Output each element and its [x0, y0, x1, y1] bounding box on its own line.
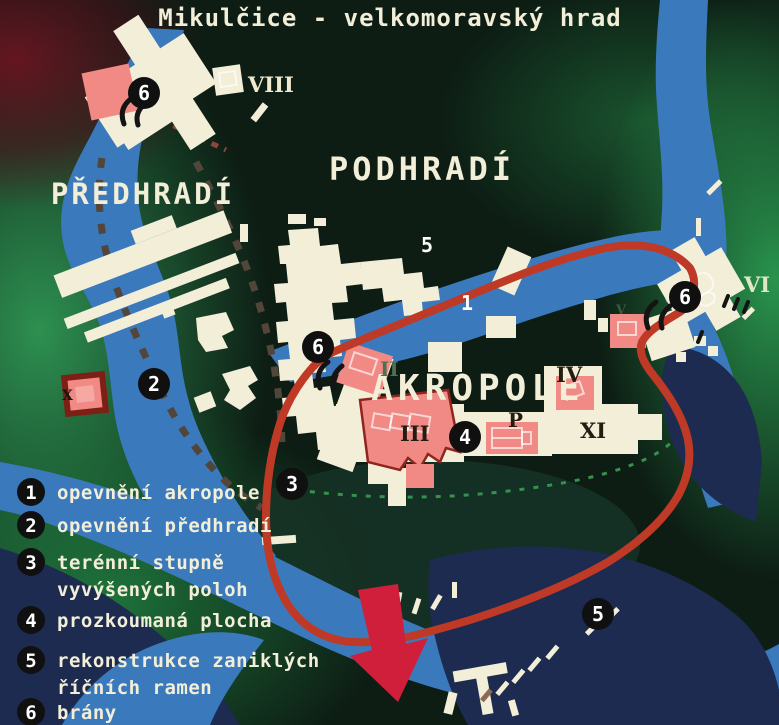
map-marker-6: 6 — [669, 281, 701, 313]
legend-item-text: brány — [57, 702, 117, 724]
site-label-xi: XI — [580, 418, 606, 443]
legend-item-number: 1 — [25, 482, 36, 504]
church-viii-shape — [212, 64, 244, 96]
legend-item-text: terénní stupně — [57, 552, 224, 574]
map-marker-6: 6 — [302, 331, 334, 363]
legend-item-number: 5 — [25, 650, 36, 672]
legend-item-text: opevnění předhradí — [57, 515, 272, 537]
site-map-svg: Mikulčice - velkomoravský hrad PŘEDHRADÍ… — [0, 0, 779, 725]
river-number-5: 5 — [421, 233, 433, 257]
map-marker-number: 2 — [148, 372, 160, 396]
legend-item-text: rekonstrukce zaniklých — [57, 650, 320, 672]
map-marker-4: 4 — [449, 421, 481, 453]
map-marker-number: 5 — [592, 602, 604, 626]
map-title: Mikulčice - velkomoravský hrad — [158, 4, 621, 32]
legend-item-text: vyvýšených poloh — [57, 579, 248, 601]
region-label-akropole: AKROPOLE — [371, 368, 584, 409]
site-label-iii: III — [400, 421, 429, 446]
site-label-ii: II — [380, 357, 399, 381]
map-marker-2: 2 — [138, 368, 170, 400]
map-marker-number: 6 — [679, 285, 691, 309]
site-label-iv: IV — [556, 362, 583, 387]
site-label-x: X — [62, 388, 73, 404]
map-marker-3: 3 — [276, 468, 308, 500]
site-label-v: V — [615, 303, 627, 318]
site-label-p: P — [508, 408, 523, 432]
map-marker-number: 6 — [138, 81, 150, 105]
river-number-1: 1 — [461, 291, 473, 315]
map-marker-6: 6 — [128, 77, 160, 109]
map-marker-5: 5 — [582, 598, 614, 630]
map-marker-number: 3 — [286, 472, 298, 496]
region-label-podhradi: PODHRADÍ — [329, 150, 515, 188]
church-small-below-iii — [406, 464, 434, 488]
legend-item-number: 6 — [25, 702, 36, 724]
site-label-viii: VIII — [247, 72, 294, 97]
map-marker-number: 6 — [312, 335, 324, 359]
legend-item-6: 6brány — [17, 698, 117, 725]
mikulcice-map-board: Mikulčice - velkomoravský hrad PŘEDHRADÍ… — [0, 0, 779, 725]
legend-item-number: 4 — [25, 610, 36, 632]
legend-item-text: opevnění akropole — [57, 482, 260, 504]
region-label-predhradi: PŘEDHRADÍ — [51, 177, 235, 211]
legend-item-text: říčních ramen — [57, 677, 212, 699]
site-label-vi: VI — [743, 272, 770, 297]
map-marker-number: 4 — [459, 425, 471, 449]
legend-item-text: prozkoumaná plocha — [57, 610, 272, 632]
legend-item-number: 3 — [25, 552, 36, 574]
legend-item-number: 2 — [25, 515, 36, 537]
